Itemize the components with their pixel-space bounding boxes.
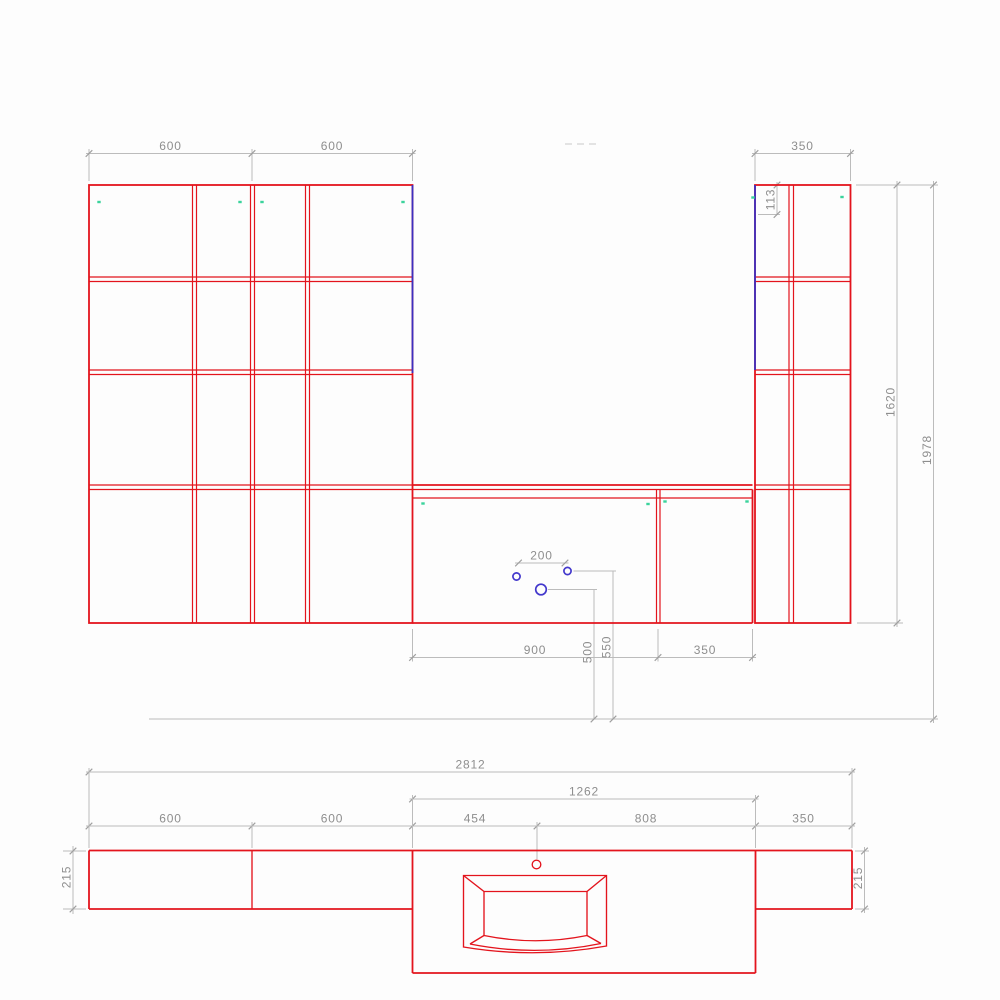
dim-label-sink-unit-width: 900 <box>524 643 546 657</box>
dim-label-left-width-2: 600 <box>321 139 343 153</box>
dim-label-hole-height-main: 500 <box>581 641 595 663</box>
dim-label-section-4: 808 <box>635 812 657 826</box>
dim-label-depth-left: 215 <box>60 866 74 888</box>
cad-furniture-drawing: 600 600 350 113 1620 1978 900 350 200 50… <box>0 0 1000 1000</box>
dim-label-side-unit-width: 350 <box>694 643 716 657</box>
hinge-markers <box>97 196 843 505</box>
dim-label-counter-width: 1262 <box>569 785 599 799</box>
hinge-marker-icon <box>97 201 100 203</box>
elevation-dimension-lines <box>86 144 938 723</box>
dim-label-left-width-1: 600 <box>159 139 181 153</box>
dim-label-section-2: 600 <box>321 812 343 826</box>
dim-label-section-3: 454 <box>464 812 486 826</box>
plan-dimension-lines <box>63 768 869 914</box>
plan-dimension-labels: 2812 1262 600 600 454 808 350 215 215 <box>60 758 866 890</box>
hole-marker-icon <box>564 567 571 574</box>
elevation-cabinets <box>89 185 851 623</box>
dim-label-total-width: 2812 <box>456 758 486 772</box>
plan-counter-outline <box>89 851 852 974</box>
hinge-marker-icon <box>663 500 666 502</box>
hinge-marker-icon <box>401 201 404 203</box>
dim-label-hole-height-side: 550 <box>600 636 614 658</box>
elevation-view: 600 600 350 113 1620 1978 900 350 200 50… <box>86 139 938 723</box>
hole-marker-icon <box>536 584 547 595</box>
elevation-dimension-labels: 600 600 350 113 1620 1978 900 350 200 50… <box>159 139 934 663</box>
dim-label-right-width: 350 <box>791 139 813 153</box>
sink-basin <box>464 860 607 953</box>
faucet-hole <box>532 860 541 869</box>
right-cabinet-column <box>755 185 851 623</box>
elevation-accent-edges <box>413 185 756 373</box>
dim-label-cabinet-height: 1620 <box>884 387 898 417</box>
dim-label-total-height: 1978 <box>920 435 934 465</box>
hinge-marker-icon <box>260 201 263 203</box>
hinge-marker-icon <box>751 196 754 198</box>
dim-label-section-1: 600 <box>159 812 181 826</box>
vanity-base-section <box>413 485 753 623</box>
drawing-canvas: 600 600 350 113 1620 1978 900 350 200 50… <box>0 0 1000 1000</box>
hinge-marker-icon <box>646 503 649 505</box>
faucet-hole-markers <box>513 567 571 594</box>
dim-label-depth-right: 215 <box>851 867 865 889</box>
hole-marker-icon <box>513 573 520 580</box>
plan-view: 2812 1262 600 600 454 808 350 215 215 <box>60 758 870 974</box>
dim-label-top-rail: 113 <box>764 189 778 211</box>
dim-label-section-5: 350 <box>792 812 814 826</box>
hinge-marker-icon <box>745 500 748 502</box>
dim-label-hole-spacing: 200 <box>530 549 552 563</box>
hinge-marker-icon <box>840 196 843 198</box>
hinge-marker-icon <box>238 201 241 203</box>
hinge-marker-icon <box>421 502 424 504</box>
